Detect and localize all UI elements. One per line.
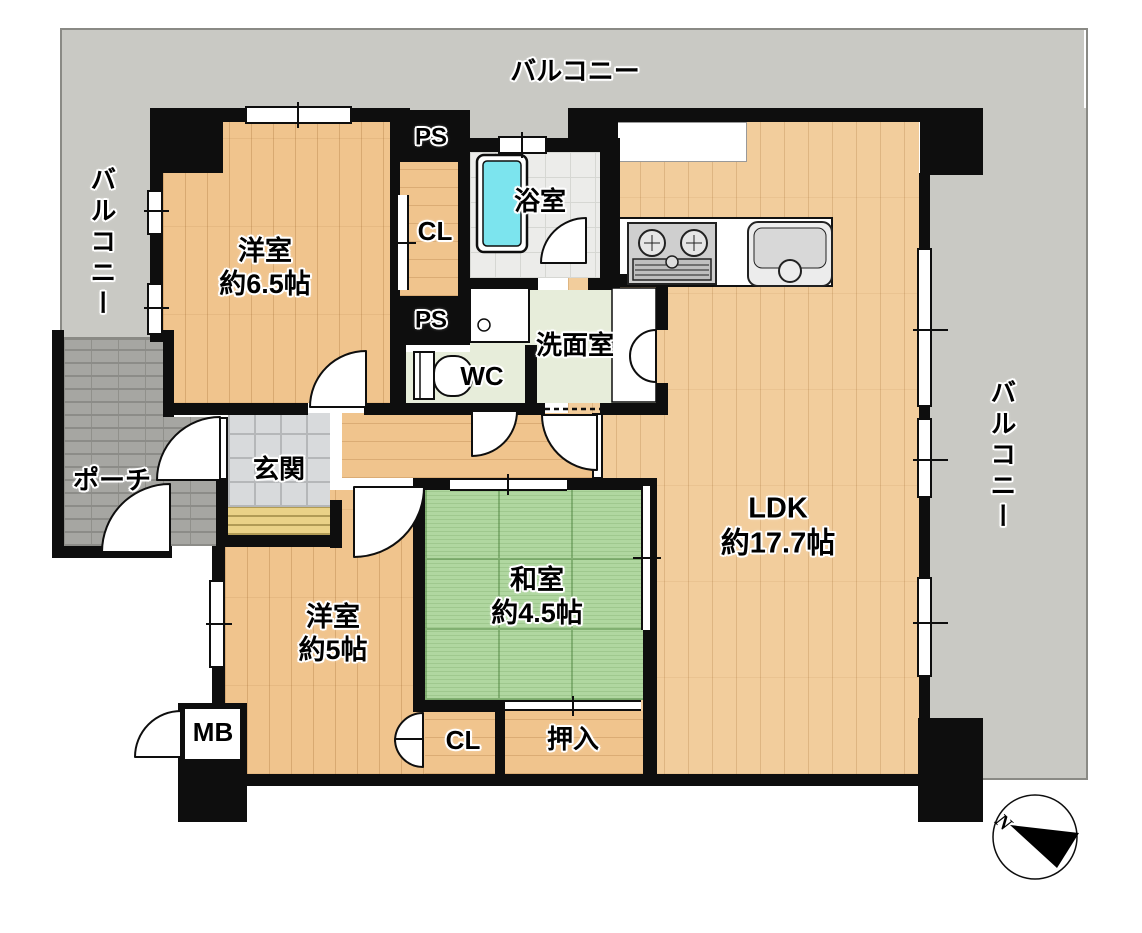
floor-porch-upper xyxy=(64,340,163,546)
door-swing-meter-box-icon xyxy=(135,711,181,757)
balcony-outline-top xyxy=(60,28,1088,30)
floorplan: バルコニー バルコニー バルコニー 洋室 約6.5帖 洋室 約5帖 和室 約4.… xyxy=(0,0,1142,933)
balcony-outline-right xyxy=(1086,28,1088,780)
label-ps-upper: PS xyxy=(415,122,447,151)
label-washroom: 洗面室 xyxy=(536,330,614,362)
label-wc: WC xyxy=(460,361,503,393)
room-name: 和室 xyxy=(491,564,583,597)
wall-washroom-right-a xyxy=(656,287,668,330)
sliding-door-washitsu-top xyxy=(450,478,567,491)
label-closet-lower: CL xyxy=(446,725,481,757)
room-name: LDK xyxy=(721,492,835,527)
column-bottom-right xyxy=(918,718,983,822)
wall-hall-top-b xyxy=(600,403,668,415)
label-oshiire: 押入 xyxy=(547,724,599,756)
window-bath xyxy=(498,136,547,154)
label-balcony-right: バルコニー xyxy=(985,379,1017,534)
door-leaf-hall-ldk xyxy=(592,413,603,479)
label-closet-upper: CL xyxy=(418,216,453,248)
window-ldk-right-1 xyxy=(917,248,932,407)
wall-closet-lower-top xyxy=(413,700,505,712)
label-balcony-top: バルコニー xyxy=(510,56,639,88)
wall-porch-left xyxy=(52,330,64,558)
window-w65-left-2 xyxy=(147,283,163,335)
room-size: 約4.5帖 xyxy=(491,597,583,630)
kitchen-half-wall xyxy=(610,274,714,287)
label-balcony-left: バルコニー xyxy=(85,166,117,321)
wall-right-s4 xyxy=(919,677,930,718)
label-western-5: 洋室 約5帖 xyxy=(298,601,367,667)
sliding-door-closet-upper xyxy=(396,195,409,290)
wall-bath-right xyxy=(600,138,620,290)
wall-washroom-right-b xyxy=(656,383,668,403)
wall-bath-bottom-b xyxy=(588,278,612,290)
kitchen-cabinet xyxy=(617,122,747,162)
window-ldk-right-3 xyxy=(917,577,932,677)
balcony-outline-left xyxy=(60,28,62,340)
entrance-step xyxy=(228,507,330,535)
compass-icon xyxy=(993,795,1079,879)
wall-top-right xyxy=(568,108,920,122)
wall-right-s2 xyxy=(919,407,930,418)
wall-entry-lower xyxy=(216,480,228,546)
label-western-6-5: 洋室 約6.5帖 xyxy=(219,235,311,301)
wall-oshiire-right xyxy=(643,712,657,774)
room-name: 洋室 xyxy=(298,601,367,634)
label-ps-lower: PS xyxy=(415,305,447,334)
sliding-door-washitsu-right xyxy=(641,486,652,630)
wall-closet-oshiire-divider xyxy=(495,712,505,774)
window-w65-left-1 xyxy=(147,190,163,235)
label-meter-box: MB xyxy=(193,717,233,749)
compass-north-label: N xyxy=(990,810,1016,837)
wall-bath-bottom-a xyxy=(458,278,538,290)
wall-right-s3 xyxy=(919,498,930,577)
window-ldk-right-2 xyxy=(917,418,932,498)
floor-hallway xyxy=(342,413,592,478)
label-porch: ポーチ xyxy=(73,465,151,497)
door-leaf-entry xyxy=(216,417,228,480)
room-size: 約5帖 xyxy=(298,634,367,667)
sliding-door-oshiire xyxy=(505,700,641,711)
wall-w65-bottom-b xyxy=(364,403,390,415)
wall-porch-bottom xyxy=(52,546,172,558)
wall-entrance-bottom xyxy=(216,535,342,547)
column-top-right xyxy=(920,108,983,175)
label-entrance: 玄関 xyxy=(253,454,305,486)
window-w65-top xyxy=(245,106,352,124)
floor-porch-lower xyxy=(163,417,216,546)
room-size: 約17.7帖 xyxy=(721,527,835,562)
wall-washitsu-top-a xyxy=(413,478,450,490)
wall-w65-bottom-a xyxy=(163,403,308,415)
label-japanese-room: 和室 約4.5帖 xyxy=(491,564,583,630)
wall-washitsu-left xyxy=(413,490,425,712)
label-ldk: LDK 約17.7帖 xyxy=(721,492,835,563)
wall-hall-top-a xyxy=(390,403,545,415)
wall-bottom xyxy=(212,774,920,786)
window-w5-left xyxy=(209,580,225,668)
room-size: 約6.5帖 xyxy=(219,268,311,301)
room-name: 洋室 xyxy=(219,235,311,268)
wall-right-s1 xyxy=(919,173,930,250)
label-bathroom: 浴室 xyxy=(514,186,566,218)
